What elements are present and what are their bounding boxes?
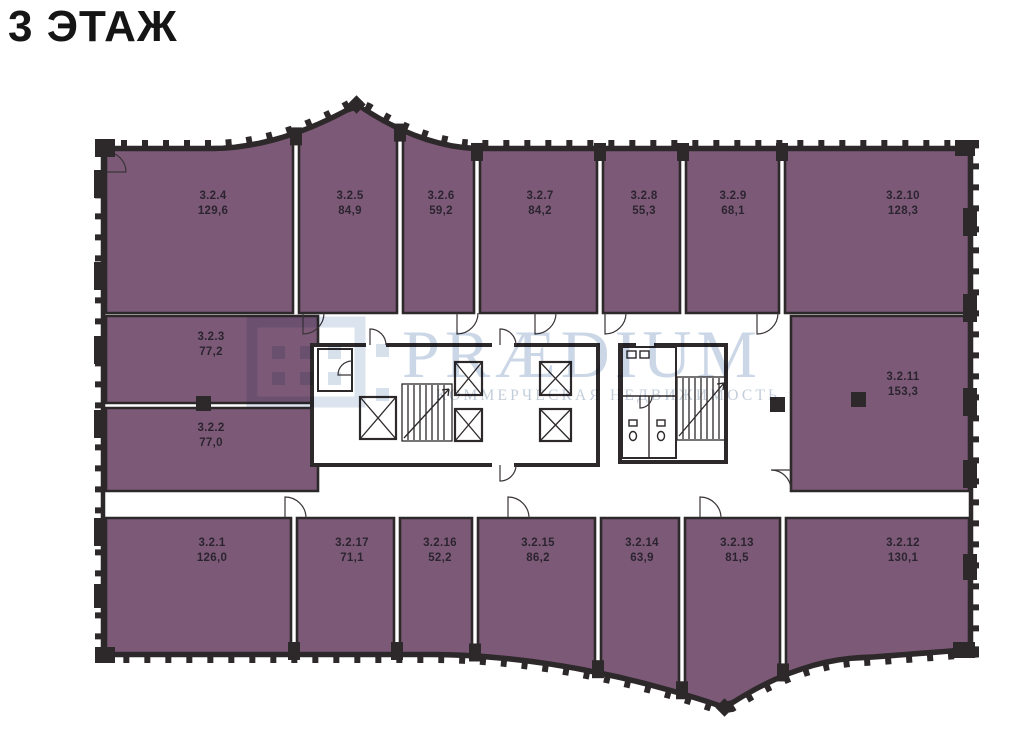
unit-id-label: 3.2.12 <box>886 537 920 549</box>
unit-id-label: 3.2.15 <box>521 537 555 549</box>
room-unit: 3.2.584,9 <box>299 107 397 313</box>
room-shape <box>403 132 474 313</box>
room-unit: 3.2.1771,1 <box>297 518 394 653</box>
unit-area-label: 52,2 <box>428 552 452 564</box>
unit-id-label: 3.2.6 <box>427 190 454 202</box>
unit-area-label: 63,9 <box>630 552 654 564</box>
room-unit: 3.2.1126,0 <box>106 518 291 653</box>
unit-id-label: 3.2.4 <box>199 190 226 202</box>
unit-id-label: 3.2.1 <box>198 537 225 549</box>
unit-id-label: 3.2.2 <box>197 422 224 434</box>
unit-id-label: 3.2.11 <box>886 371 919 383</box>
room-shape <box>686 150 779 313</box>
unit-area-label: 84,2 <box>528 205 552 217</box>
room-unit: 3.2.968,1 <box>686 150 779 313</box>
room-unit: 3.2.12130,1 <box>786 518 969 673</box>
unit-id-label: 3.2.8 <box>630 190 657 202</box>
room-unit: 3.2.784,2 <box>480 150 597 313</box>
wall-junction-block <box>394 124 406 142</box>
room-unit: 3.2.11153,3 <box>791 316 969 491</box>
unit-area-label: 77,2 <box>199 346 223 358</box>
unit-area-label: 55,3 <box>632 205 656 217</box>
unit-area-label: 153,3 <box>888 386 918 398</box>
unit-area-label: 59,2 <box>429 205 453 217</box>
unit-id-label: 3.2.14 <box>625 537 659 549</box>
room-unit: 3.2.4129,6 <box>106 135 293 313</box>
room-shape <box>480 150 597 313</box>
floor-plan-page: 3 ЭТАЖ 3.2.4129,63.2.584,93.2.659,23.2.7… <box>0 0 1024 734</box>
unit-id-label: 3.2.17 <box>335 537 369 549</box>
unit-area-label: 130,1 <box>888 552 919 564</box>
unit-area-label: 81,5 <box>725 552 749 564</box>
room-shape <box>106 408 318 491</box>
room-unit: 3.2.1463,9 <box>601 518 679 691</box>
unit-id-label: 3.2.10 <box>886 190 920 202</box>
room-unit: 3.2.1381,5 <box>685 518 780 704</box>
unit-area-label: 129,6 <box>198 205 228 217</box>
floor-plan-svg: 3.2.4129,63.2.584,93.2.659,23.2.784,23.2… <box>0 0 1024 734</box>
room-unit: 3.2.1652,2 <box>400 518 472 654</box>
unit-id-label: 3.2.7 <box>526 190 553 202</box>
room-unit: 3.2.659,2 <box>403 132 474 313</box>
wall-junction-block <box>677 143 689 161</box>
unit-id-label: 3.2.5 <box>336 190 363 202</box>
unit-area-label: 84,9 <box>338 205 362 217</box>
room-unit: 3.2.1586,2 <box>478 518 595 671</box>
room-shape <box>785 150 969 313</box>
wall-junction-block <box>777 663 789 681</box>
unit-id-label: 3.2.3 <box>197 331 224 343</box>
room-unit: 3.2.277,0 <box>106 408 318 491</box>
wall-junction-block <box>391 642 403 660</box>
room-unit: 3.2.377,2 <box>106 316 318 403</box>
room-unit: 3.2.855,3 <box>603 150 680 313</box>
unit-area-label: 128,3 <box>888 205 918 217</box>
unit-id-label: 3.2.16 <box>423 537 457 549</box>
wall-junction-block <box>290 127 302 145</box>
unit-area-label: 77,0 <box>199 437 223 449</box>
room-shape <box>786 518 969 673</box>
watermark-tagline: КОММЕРЧЕСКАЯ НЕДВИЖИМОСТЬ <box>436 387 780 404</box>
unit-area-label: 126,0 <box>197 552 227 564</box>
unit-id-label: 3.2.9 <box>719 190 746 202</box>
unit-id-label: 3.2.13 <box>720 537 754 549</box>
wall-junction-block <box>676 681 688 699</box>
wall-junction-block <box>592 660 604 678</box>
unit-area-label: 68,1 <box>721 205 745 217</box>
room-shape <box>791 316 969 491</box>
wall-junction-block <box>594 143 606 161</box>
watermark-brand: PRÆDIUM <box>402 316 762 392</box>
room-unit: 3.2.10128,3 <box>785 150 969 313</box>
room-shape <box>106 135 293 313</box>
wall-junction-block <box>469 643 481 661</box>
room-shape <box>106 316 318 403</box>
wall-junction-block <box>776 143 788 161</box>
room-shape <box>603 150 680 313</box>
wall-junction-block <box>288 642 300 660</box>
wall-junction-block <box>471 143 483 161</box>
unit-area-label: 71,1 <box>340 552 364 564</box>
unit-area-label: 86,2 <box>526 552 550 564</box>
